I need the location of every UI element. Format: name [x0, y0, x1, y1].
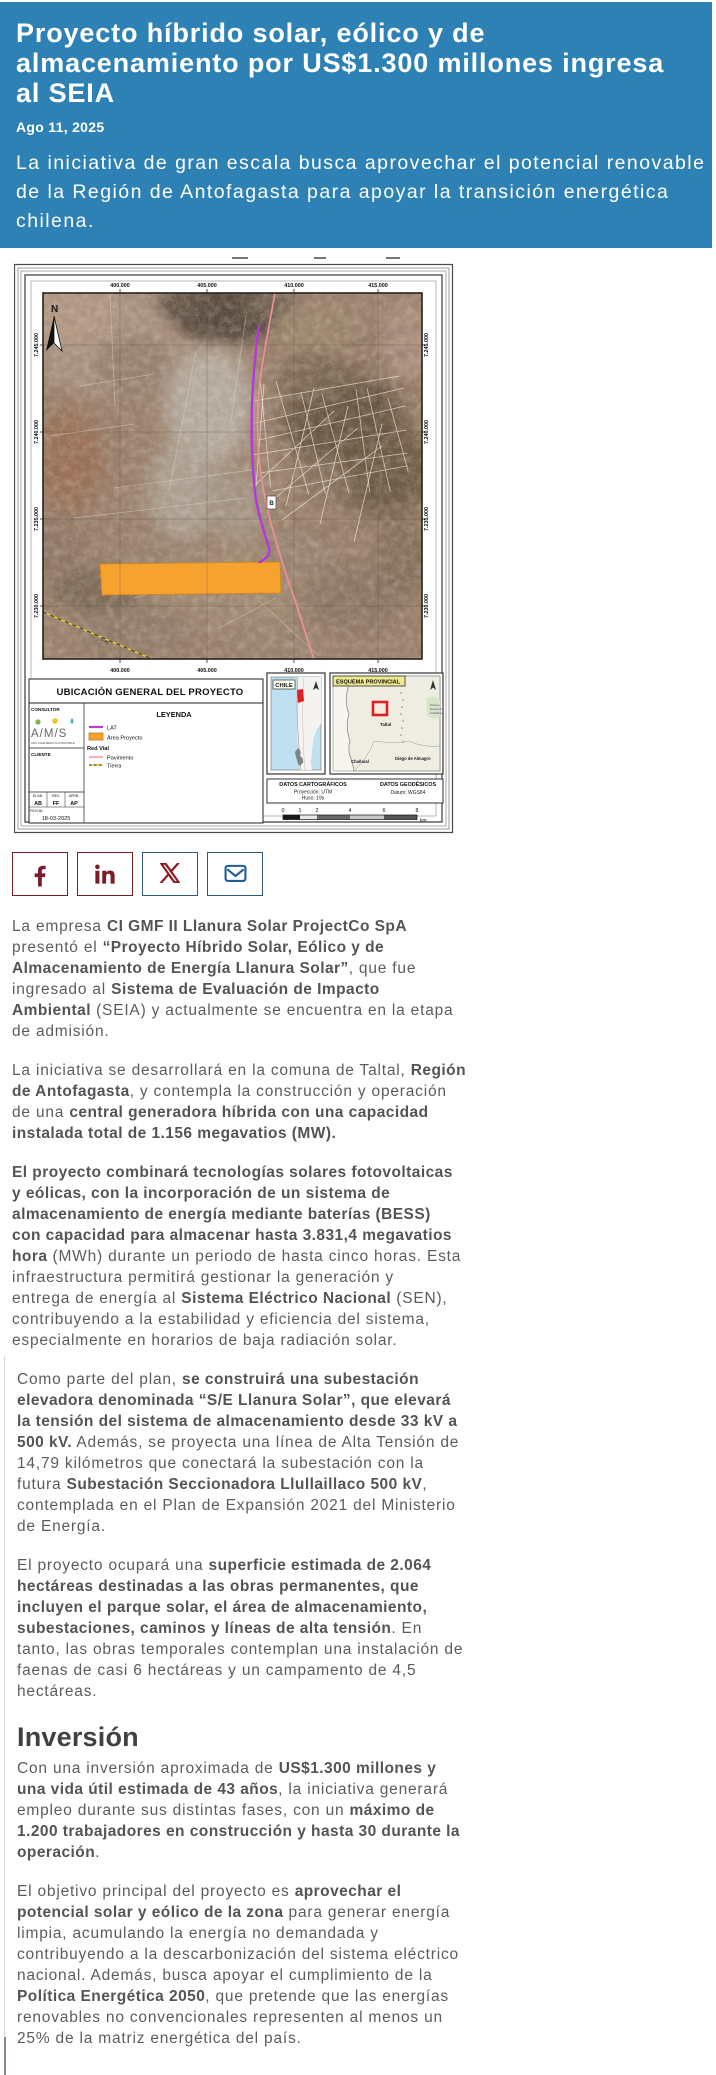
svg-text:AP: AP [70, 801, 78, 807]
svg-text:ELAB.: ELAB. [33, 794, 43, 798]
svg-text:Área Proyecto: Área Proyecto [107, 735, 142, 742]
svg-text:Diego de Almagro: Diego de Almagro [395, 756, 431, 761]
svg-text:410.000: 410.000 [284, 283, 304, 289]
svg-text:Tierra: Tierra [107, 764, 122, 770]
svg-text:FECHA:: FECHA: [30, 809, 43, 813]
svg-text:400.000: 400.000 [110, 283, 130, 289]
svg-text:415.000: 415.000 [368, 283, 388, 289]
svg-text:405.000: 405.000 [197, 283, 217, 289]
svg-text:Datum: WGS84: Datum: WGS84 [390, 790, 425, 796]
svg-text:1: 1 [299, 808, 302, 814]
svg-text:CONSULTOR: CONSULTOR [31, 707, 60, 712]
svg-text:6: 6 [383, 808, 386, 814]
svg-text:Taltal: Taltal [380, 722, 391, 727]
svg-text:Red Vial: Red Vial [87, 746, 109, 752]
svg-text:DATOS CARTOGRÁFICOS: DATOS CARTOGRÁFICOS [279, 781, 347, 788]
svg-text:FF: FF [53, 801, 60, 807]
svg-text:7.240.000: 7.240.000 [34, 420, 40, 444]
svg-text:km: km [420, 818, 427, 824]
svg-text:Pavimento: Pavimento [107, 756, 133, 762]
svg-text:18-03-2025: 18-03-2025 [42, 816, 71, 822]
svg-text:LAT: LAT [107, 726, 117, 732]
svg-text:CHILE: CHILE [275, 683, 293, 689]
svg-text:AMS INGENIERÍA SUSTENTABLE: AMS INGENIERÍA SUSTENTABLE [31, 741, 75, 745]
svg-text:Chañaral: Chañaral [351, 759, 369, 764]
svg-text:DATOS GEODÉSICOS: DATOS GEODÉSICOS [380, 780, 437, 788]
svg-text:B: B [269, 501, 274, 507]
svg-text:APRB.: APRB. [69, 794, 80, 798]
svg-text:405.000: 405.000 [197, 668, 217, 674]
svg-text:AB: AB [34, 801, 42, 807]
svg-text:A/M/S: A/M/S [31, 728, 67, 740]
svg-text:REV.: REV. [52, 794, 60, 798]
svg-text:Huso: 19s: Huso: 19s [302, 796, 325, 802]
svg-text:2: 2 [316, 808, 319, 814]
svg-text:7.245.000: 7.245.000 [34, 333, 40, 357]
svg-text:400.000: 400.000 [110, 668, 130, 674]
svg-text:7.235.000: 7.235.000 [34, 507, 40, 531]
svg-text:7.230.000: 7.230.000 [34, 594, 40, 618]
svg-text:CLIENTE: CLIENTE [31, 752, 51, 757]
svg-text:N: N [51, 304, 58, 315]
svg-text:LEYENDA: LEYENDA [156, 710, 192, 719]
svg-text:0: 0 [282, 808, 285, 814]
svg-text:8: 8 [416, 808, 419, 814]
svg-text:UBICACIÓN GENERAL DEL PROYECTO: UBICACIÓN GENERAL DEL PROYECTO [57, 686, 244, 698]
svg-text:Llullaillaco: Llullaillaco [430, 711, 444, 715]
svg-text:ESQUEMA PROVINCIAL: ESQUEMA PROVINCIAL [336, 680, 401, 686]
svg-text:4: 4 [349, 808, 352, 814]
